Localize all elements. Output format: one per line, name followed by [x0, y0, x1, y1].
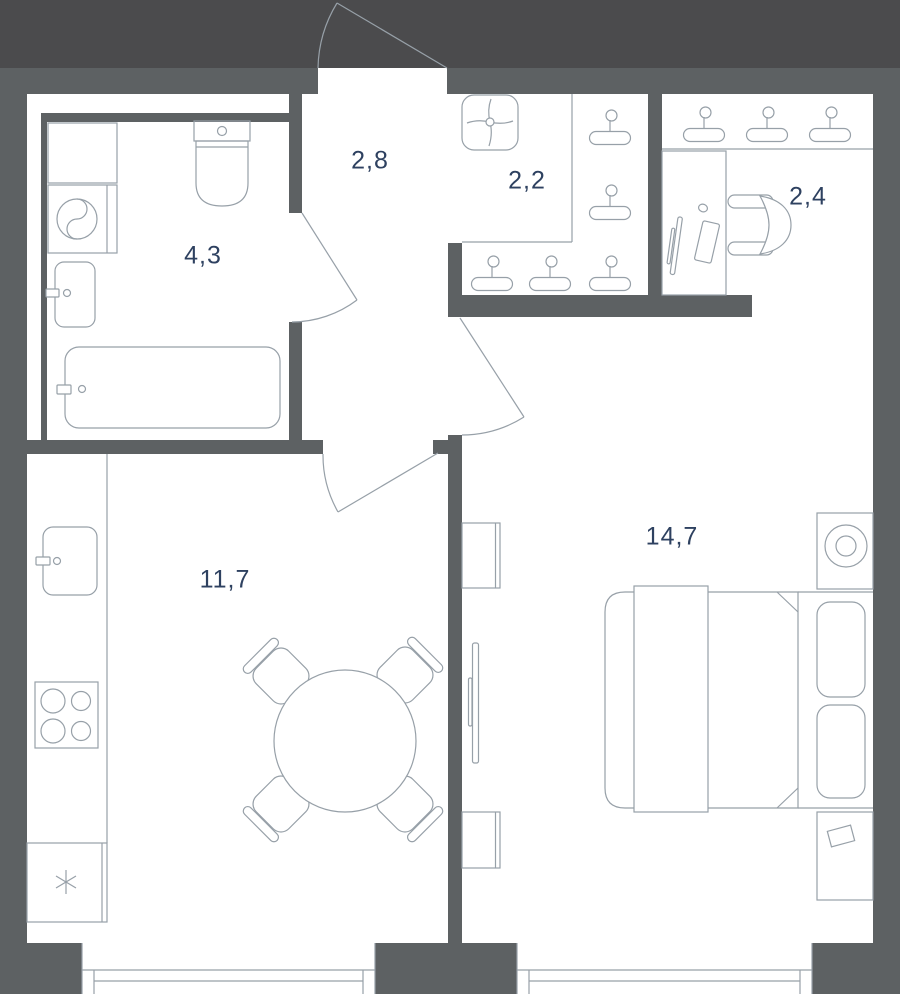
- room-label-hallway: 2,8: [351, 147, 389, 176]
- room-label-kitchen-living: 11,7: [200, 566, 251, 595]
- desk: [662, 151, 726, 295]
- pillow: [817, 705, 865, 798]
- outside-area: [0, 0, 900, 68]
- room-label-bedroom: 14,7: [646, 523, 699, 552]
- blanket: [634, 586, 708, 812]
- nightstand-top: [817, 513, 873, 589]
- room-label-wardrobe: 2,2: [508, 167, 546, 196]
- kitchen-sink: [36, 527, 97, 595]
- entrance-opening: [318, 68, 447, 94]
- room-label-bathroom: 4,3: [184, 242, 222, 271]
- kitchen-window: [82, 943, 375, 994]
- dining-table: [274, 670, 416, 812]
- pillow: [817, 602, 865, 697]
- nightstand-bottom: [817, 812, 873, 900]
- floor-plan-drawing: [0, 0, 900, 994]
- room-label-workspace: 2,4: [789, 183, 827, 212]
- floor-plan: 4,3 2,8 2,2 2,4 11,7 14,7: [0, 0, 900, 994]
- bedroom-window: [517, 943, 812, 994]
